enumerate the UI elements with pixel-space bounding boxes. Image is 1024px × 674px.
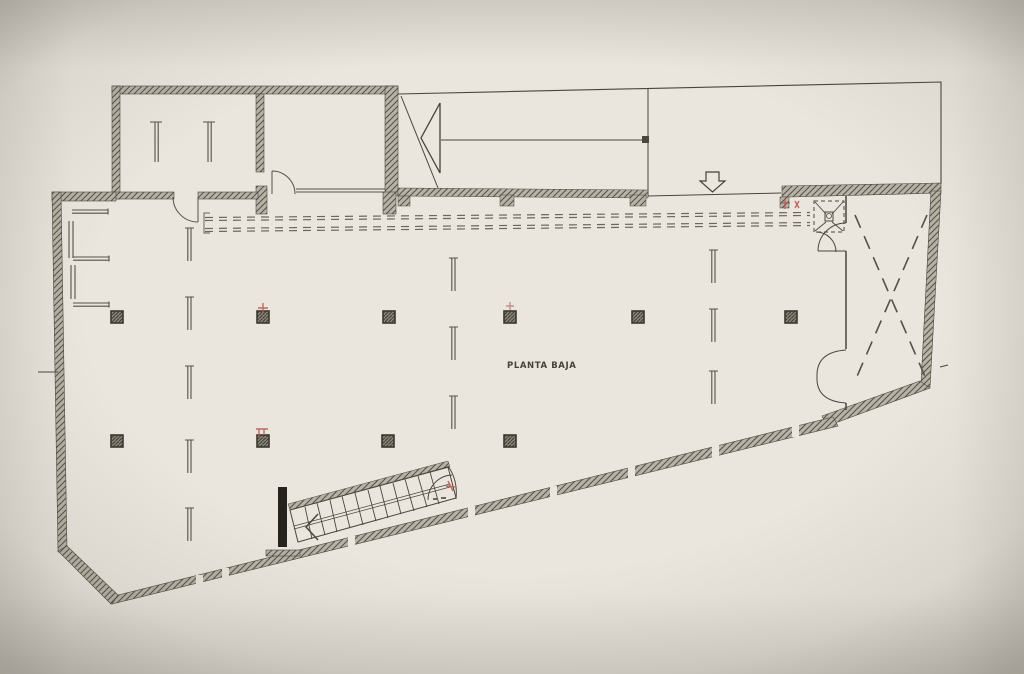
ramp-end-marker <box>642 136 649 143</box>
scanned-floor-plan-photo: PLANTA BAJA <box>0 0 1024 674</box>
column <box>382 435 394 447</box>
room-top-wall <box>112 86 398 94</box>
ramp-bottom-wall <box>398 188 648 198</box>
plan-title: PLANTA BAJA <box>507 361 576 371</box>
stair-wall-bar <box>278 487 287 547</box>
column <box>785 311 797 323</box>
room-right-wall <box>385 86 398 196</box>
wall-stub <box>398 196 410 206</box>
top-left-wall <box>52 192 116 201</box>
room1-bottom-wall <box>198 192 258 199</box>
column <box>111 311 123 323</box>
wall-stub <box>256 186 267 214</box>
column <box>632 311 644 323</box>
wall-stub <box>383 192 396 214</box>
floor-plan-drawing: PLANTA BAJA <box>0 0 1024 674</box>
column <box>111 435 123 447</box>
wall-stub <box>266 550 300 556</box>
column <box>383 311 395 323</box>
room-left-wall <box>112 86 120 199</box>
column <box>504 435 516 447</box>
wall-stub <box>630 195 646 206</box>
room-divider-wall <box>256 94 264 172</box>
wall-stub <box>500 195 514 206</box>
paper-background <box>0 0 1024 674</box>
room1-bottom-wall <box>112 192 174 199</box>
column <box>504 311 516 323</box>
